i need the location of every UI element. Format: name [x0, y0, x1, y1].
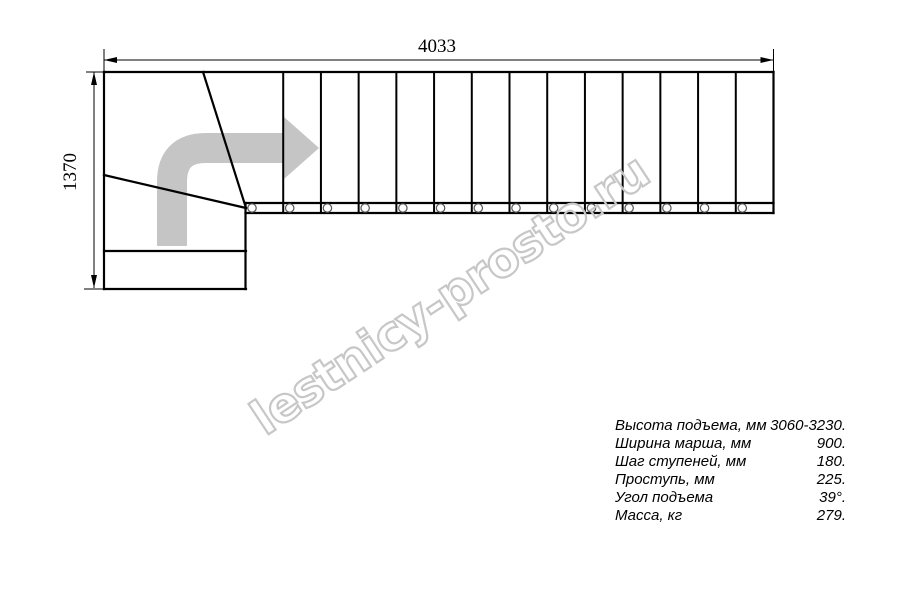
spec-row-step: Шаг ступеней, мм 180. [615, 453, 846, 471]
stringer-bolt-circle [587, 204, 595, 212]
spec-label: Шаг ступеней, мм [615, 453, 746, 471]
spec-value: 180. [817, 453, 846, 471]
stringer-bolt-circle [361, 204, 369, 212]
tread-lines [283, 72, 736, 213]
stringer-bolt-circle [700, 204, 708, 212]
spec-table: Высота подъема, мм 3060-3230. Ширина мар… [615, 417, 846, 525]
dim-arrow-right [761, 57, 774, 63]
spec-label: Ширина марша, мм [615, 435, 751, 453]
stringer-bolt-circle [512, 204, 520, 212]
spec-value: 39°. [819, 489, 846, 507]
spec-label: Угол подъема [615, 489, 713, 507]
dim-width-label: 4033 [418, 36, 456, 57]
spec-value: 3060-3230. [770, 417, 846, 435]
stringer-bolt-circle [625, 204, 633, 212]
spec-value: 225. [817, 471, 846, 489]
stringer-bolt-circle [399, 204, 407, 212]
dim-height-label: 1370 [60, 153, 81, 191]
spec-label: Высота подъема, мм [615, 417, 767, 435]
spec-row-angle: Угол подъема 39°. [615, 489, 846, 507]
spec-row-height: Высота подъема, мм 3060-3230. [615, 417, 846, 435]
stringer-bolt-circle [323, 204, 331, 212]
stringer-bolt-circle [663, 204, 671, 212]
dim-arrow-left [104, 57, 117, 63]
stringer-bolt-circle [436, 204, 444, 212]
spec-value: 900. [817, 435, 846, 453]
dim-arrow-top [91, 72, 97, 85]
stringer-bolt-circle [286, 204, 294, 212]
stringer-bolt-circle [474, 204, 482, 212]
dimension-height: 1370 [60, 72, 104, 289]
spec-row-width: Ширина марша, мм 900. [615, 435, 846, 453]
spec-label: Масса, кг [615, 507, 682, 525]
stair-plan-drawing: 4033 1370 lestnicy-prosto.ru Высота подъ… [0, 0, 900, 600]
stringer-bolt-circle [738, 204, 746, 212]
stringer-bolt-circle [248, 204, 256, 212]
spec-label: Проступь, мм [615, 471, 715, 489]
stair-outline [104, 72, 774, 289]
stringer-bolt-circle [550, 204, 558, 212]
spec-value: 279. [817, 507, 846, 525]
dim-arrow-bottom [91, 275, 97, 288]
spec-row-mass: Масса, кг 279. [615, 507, 846, 525]
tread-circles [248, 204, 747, 212]
dimension-width: 4033 [104, 36, 774, 72]
spec-row-tread: Проступь, мм 225. [615, 471, 846, 489]
